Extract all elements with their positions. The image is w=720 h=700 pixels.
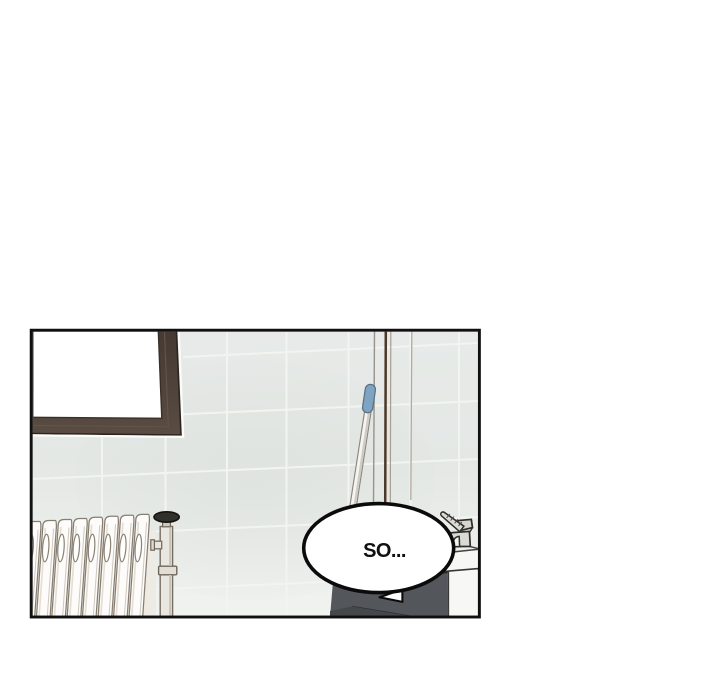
svg-text:SO...: SO... (363, 540, 406, 562)
